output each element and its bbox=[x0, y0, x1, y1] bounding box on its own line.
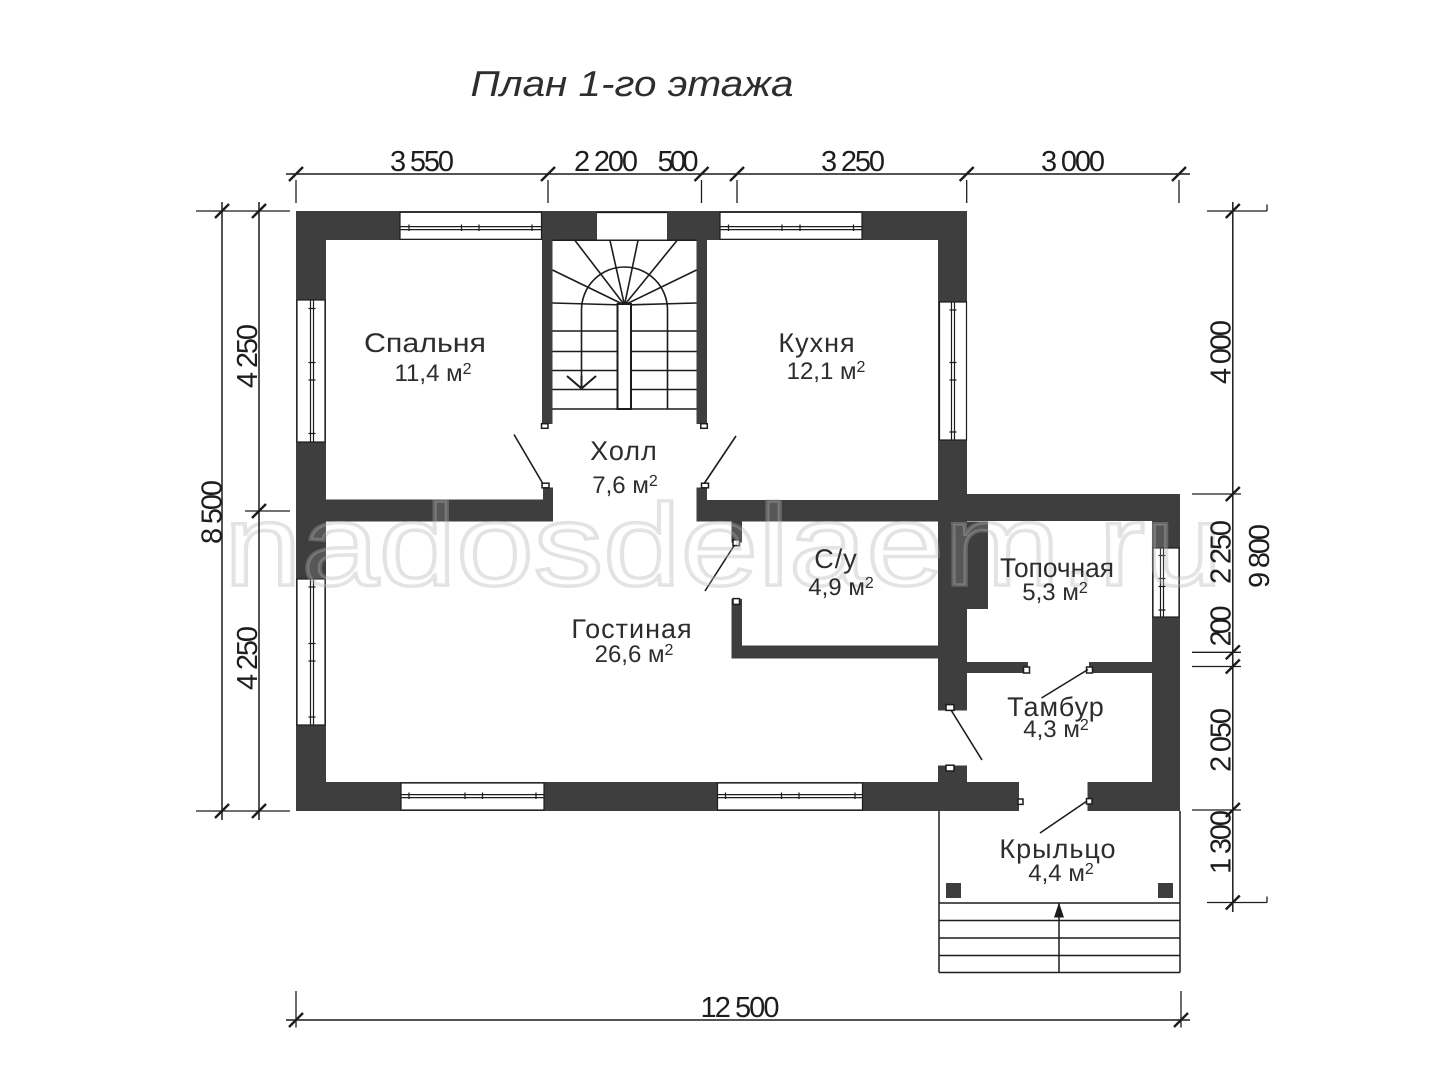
svg-text:7,6 м2: 7,6 м2 bbox=[592, 472, 658, 499]
svg-text:9 800: 9 800 bbox=[1244, 524, 1276, 588]
svg-text:3 250: 3 250 bbox=[821, 146, 885, 178]
svg-text:4,4 м2: 4,4 м2 bbox=[1028, 860, 1094, 887]
svg-text:1 300: 1 300 bbox=[1206, 810, 1238, 874]
svg-text:С/у: С/у bbox=[814, 544, 858, 574]
svg-text:Кухня: Кухня bbox=[778, 328, 855, 358]
svg-text:Холл: Холл bbox=[590, 436, 658, 466]
svg-text:12,1 м2: 12,1 м2 bbox=[787, 358, 866, 385]
svg-text:12 500: 12 500 bbox=[701, 992, 780, 1024]
svg-text:5,3 м2: 5,3 м2 bbox=[1022, 579, 1088, 606]
svg-text:4,9 м2: 4,9 м2 bbox=[808, 574, 874, 601]
svg-text:500: 500 bbox=[658, 146, 699, 178]
svg-text:2 050: 2 050 bbox=[1206, 708, 1238, 772]
svg-text:Гостиная: Гостиная bbox=[571, 614, 692, 644]
svg-text:200: 200 bbox=[1206, 606, 1238, 647]
svg-text:4,3 м2: 4,3 м2 bbox=[1023, 716, 1089, 743]
svg-text:8 500: 8 500 bbox=[197, 480, 229, 544]
svg-text:4 250: 4 250 bbox=[232, 626, 264, 690]
svg-text:3 550: 3 550 bbox=[390, 146, 454, 178]
svg-text:Спальня: Спальня bbox=[364, 328, 486, 358]
svg-text:3 000: 3 000 bbox=[1041, 146, 1105, 178]
svg-text:11,4 м2: 11,4 м2 bbox=[394, 360, 471, 387]
svg-text:26,6 м2: 26,6 м2 bbox=[595, 641, 674, 668]
svg-text:План 1-го этажа: План 1-го этажа bbox=[471, 63, 794, 104]
svg-text:2 250: 2 250 bbox=[1206, 520, 1238, 584]
svg-text:4 000: 4 000 bbox=[1206, 320, 1238, 384]
svg-text:4 250: 4 250 bbox=[232, 324, 264, 388]
svg-text:2 200: 2 200 bbox=[574, 146, 638, 178]
